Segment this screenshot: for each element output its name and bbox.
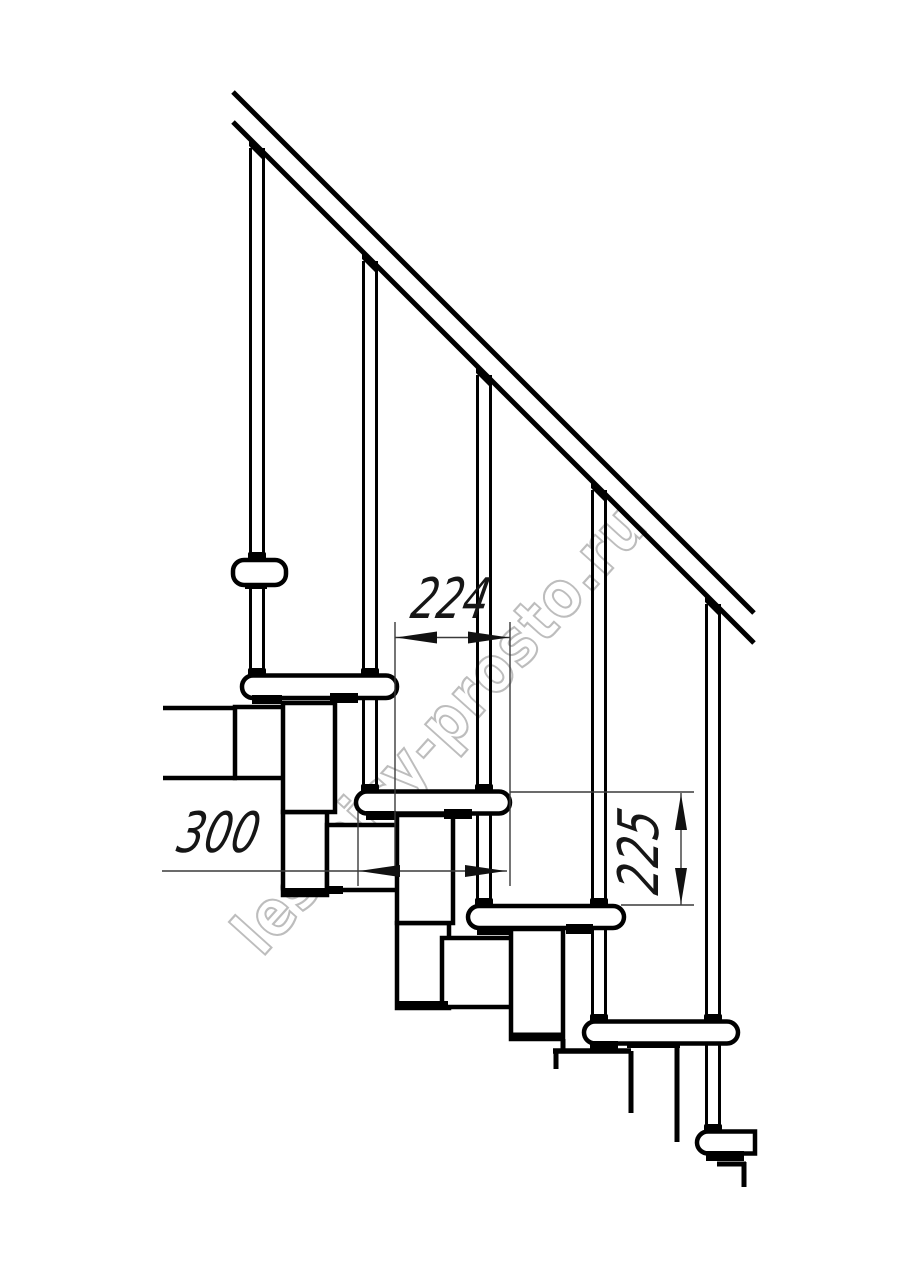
attach-stub (590, 1041, 618, 1049)
tread-5 (697, 1132, 755, 1154)
staircase-drawing: lestnicy-prosto.ru (0, 0, 914, 1280)
attach-stub (330, 693, 358, 703)
tread-1 (242, 676, 397, 699)
collar (704, 1014, 722, 1023)
tread-4 (584, 1022, 738, 1044)
attach-stub (477, 926, 510, 935)
collar (704, 1124, 722, 1133)
collar (475, 784, 493, 793)
collar (590, 898, 608, 907)
drawing-page: lestnicy-prosto.ru (0, 0, 914, 1280)
dimension-label-step-run: 224 (406, 567, 496, 632)
collar (248, 552, 266, 561)
dimension-label-riser-height: 225 (607, 803, 672, 899)
module-3 (511, 929, 563, 1039)
attach-stub (252, 695, 282, 704)
attach-stub (366, 811, 396, 820)
upper-tread-fragment (233, 560, 286, 585)
drawing-background (0, 0, 914, 1280)
tread-3 (468, 906, 624, 928)
collar (590, 1014, 608, 1023)
module-2 (397, 815, 453, 923)
attach-stub (444, 809, 472, 819)
fragment-foot (327, 886, 343, 894)
fragment-box-3 (442, 938, 519, 1007)
attach-stub (245, 583, 267, 589)
attach-stub (566, 924, 593, 934)
attach-stub (706, 1151, 744, 1161)
support-box-1 (283, 812, 327, 895)
fragment-box-2 (327, 825, 403, 890)
collar (361, 668, 379, 677)
dimension-label-tread-depth: 300 (172, 801, 266, 866)
collar (361, 784, 379, 793)
tread-2 (356, 792, 510, 814)
collar (248, 668, 266, 677)
collar (475, 898, 493, 907)
module-1 (283, 703, 335, 812)
